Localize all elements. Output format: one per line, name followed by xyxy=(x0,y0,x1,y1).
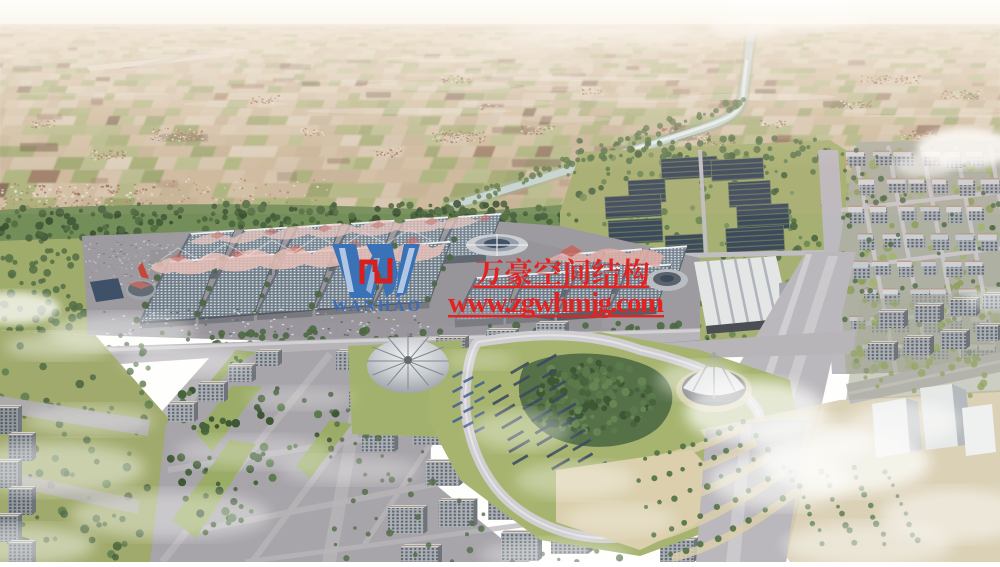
svg-text:www.zgwhmjg.com: www.zgwhmjg.com xyxy=(448,287,664,319)
